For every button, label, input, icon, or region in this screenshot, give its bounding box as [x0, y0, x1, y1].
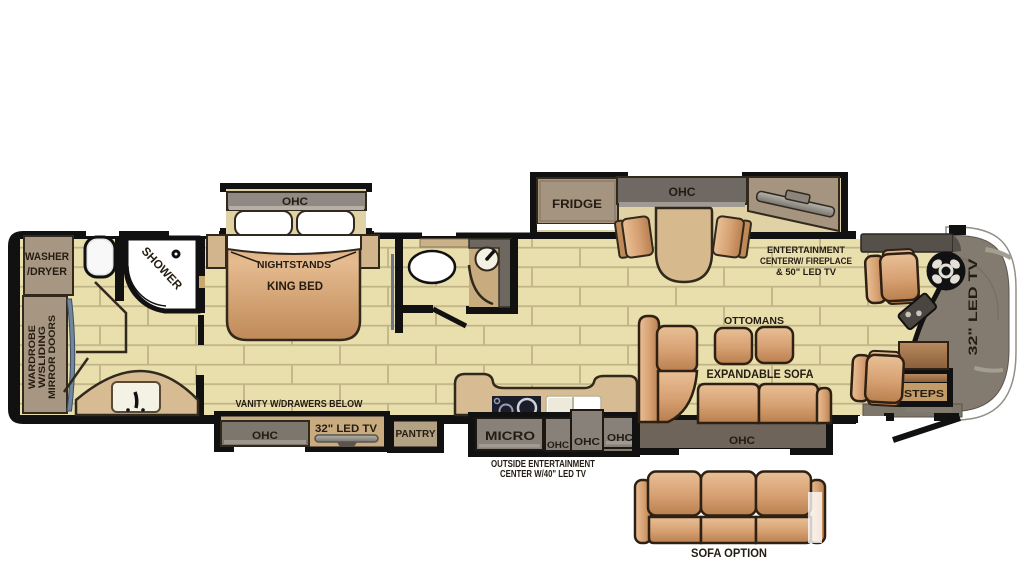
svg-text:OHC: OHC: [574, 436, 600, 448]
svg-text:MIRROR DOORS: MIRROR DOORS: [47, 315, 58, 399]
svg-text:OTTOMANS: OTTOMANS: [724, 315, 784, 327]
svg-text:OHC: OHC: [669, 187, 696, 199]
svg-text:OHC: OHC: [607, 432, 633, 444]
svg-text:MICRO: MICRO: [485, 431, 535, 443]
svg-text:OHC: OHC: [729, 435, 755, 447]
svg-text:FRIDGE: FRIDGE: [552, 199, 602, 211]
svg-text:ENTERTAINMENT: ENTERTAINMENT: [767, 245, 845, 256]
svg-text:EXPANDABLE SOFA: EXPANDABLE SOFA: [707, 369, 814, 381]
svg-text:PANTRY: PANTRY: [396, 428, 436, 440]
svg-text:STEPS: STEPS: [904, 388, 944, 400]
svg-text:OHC: OHC: [547, 440, 569, 451]
svg-text:32" LED TV: 32" LED TV: [968, 258, 980, 355]
svg-text:CENTERW/ FIREPLACE: CENTERW/ FIREPLACE: [760, 256, 852, 267]
svg-text:WASHER: WASHER: [25, 251, 69, 263]
svg-text:NIGHTSTANDS: NIGHTSTANDS: [257, 259, 331, 271]
svg-text:OHC: OHC: [252, 430, 278, 442]
svg-text:CENTER W/40" LED TV: CENTER W/40" LED TV: [500, 469, 586, 480]
svg-text:/DRYER: /DRYER: [27, 266, 67, 278]
svg-text:32" LED TV: 32" LED TV: [315, 423, 378, 435]
svg-text:& 50" LED TV: & 50" LED TV: [776, 267, 837, 278]
svg-text:SOFA OPTION: SOFA OPTION: [691, 546, 767, 560]
svg-text:OHC: OHC: [282, 196, 308, 208]
svg-text:VANITY W/DRAWERS BELOW: VANITY W/DRAWERS BELOW: [236, 399, 363, 410]
svg-text:KING BED: KING BED: [267, 281, 323, 293]
